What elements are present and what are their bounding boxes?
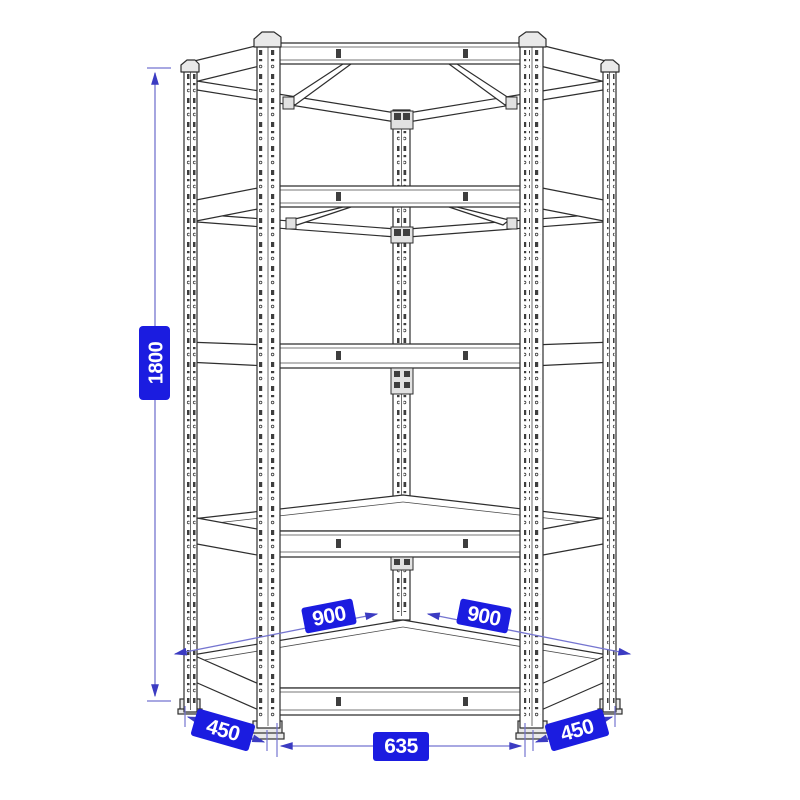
dimension-front-width-635: 635 (277, 723, 525, 761)
diagram-canvas: 1800 900 900 450 450 (0, 0, 800, 800)
corner-brace-left (291, 207, 351, 225)
shelf-level-4 (186, 495, 614, 570)
dimension-height-1800: 1800 (139, 68, 171, 701)
front-width-dimension-label: 635 (384, 735, 418, 758)
post-cap (601, 60, 619, 72)
shelf-level-5 (186, 620, 614, 715)
back-beam-right (408, 214, 603, 237)
shelf-surface (192, 495, 608, 531)
height-dimension-label: 1800 (146, 341, 168, 384)
far-right-post (598, 60, 622, 714)
corner-brace-left (288, 64, 351, 105)
corner-brace-right (449, 64, 512, 105)
front-beam (268, 186, 532, 207)
side-beam-right (532, 342, 614, 366)
shelf-level-1 (186, 43, 614, 129)
post-cap (181, 60, 199, 72)
post-cap (519, 32, 546, 47)
front-beam (268, 43, 532, 64)
far-left-post (178, 60, 202, 714)
post-cap (254, 32, 281, 47)
corner-shelf-dimension-drawing: 1800 900 900 450 450 (0, 0, 800, 800)
side-beam-left (186, 342, 268, 366)
corner-brace-right (449, 207, 509, 225)
shelf-level-3 (186, 342, 614, 394)
shelf-surface (192, 620, 608, 688)
